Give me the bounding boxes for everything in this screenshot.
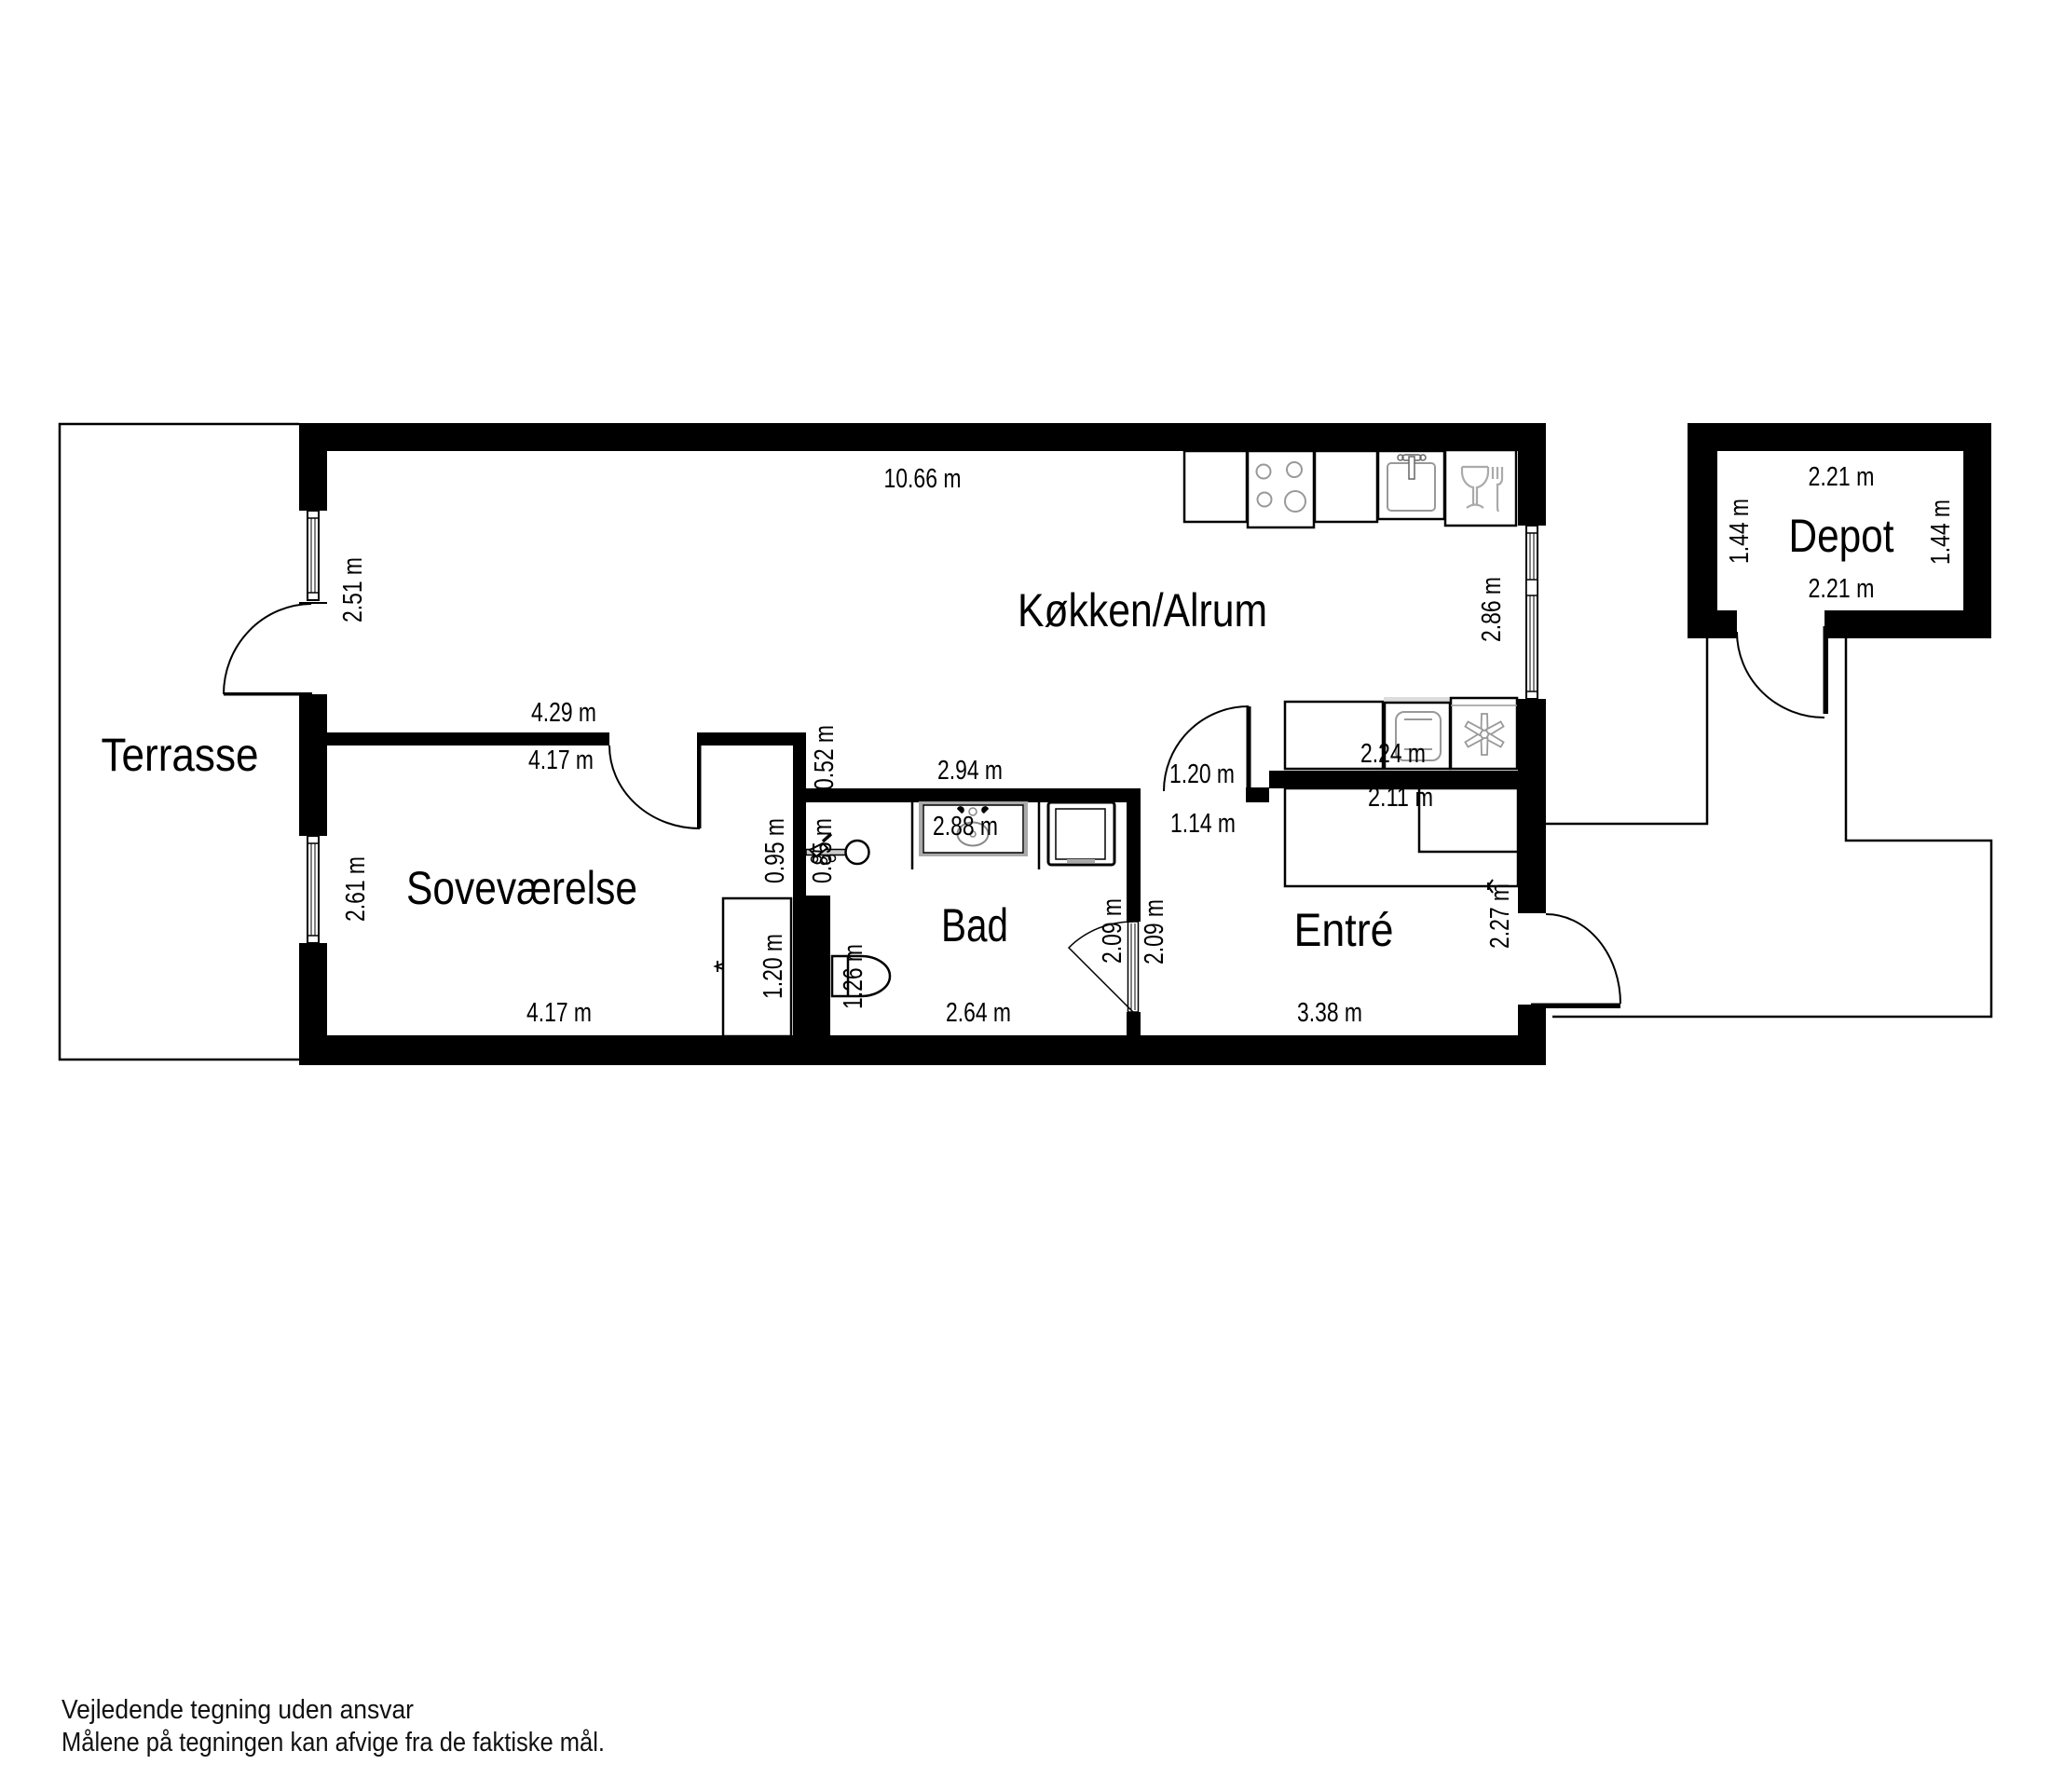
svg-text:3.38 m: 3.38 m [1297, 998, 1362, 1028]
svg-text:2.09 m: 2.09 m [1098, 898, 1127, 964]
svg-text:Entré: Entré [1294, 904, 1394, 956]
svg-text:1.44 m: 1.44 m [1725, 499, 1755, 564]
svg-text:2.64 m: 2.64 m [946, 998, 1011, 1028]
svg-text:0.95 m: 0.95 m [760, 818, 790, 883]
svg-text:Vejledende tegning uden ansvar: Vejledende tegning uden ansvar [61, 1695, 414, 1725]
svg-text:Terrasse: Terrasse [102, 729, 259, 781]
svg-text:4.17 m: 4.17 m [528, 746, 594, 775]
svg-text:4.29 m: 4.29 m [531, 698, 596, 728]
svg-text:2.09 m: 2.09 m [1140, 899, 1169, 964]
svg-text:Målene på tegningen kan afvige: Målene på tegningen kan afvige fra de fa… [61, 1728, 605, 1758]
svg-text:1.44 m: 1.44 m [1926, 499, 1956, 565]
svg-text:4.17 m: 4.17 m [526, 998, 592, 1028]
svg-text:Bad: Bad [941, 899, 1008, 951]
svg-text:Depot: Depot [1789, 510, 1894, 562]
svg-text:2.94 m: 2.94 m [937, 756, 1003, 786]
svg-text:10.66 m: 10.66 m [884, 464, 962, 494]
svg-text:1.20 m: 1.20 m [1169, 759, 1235, 789]
svg-text:1.14 m: 1.14 m [1170, 809, 1236, 839]
svg-text:Soveværelse: Soveværelse [406, 862, 637, 914]
svg-text:Køkken/Alrum: Køkken/Alrum [1018, 584, 1267, 636]
svg-text:1.20 m: 1.20 m [758, 934, 788, 999]
svg-text:2.24 m: 2.24 m [1360, 739, 1426, 769]
svg-text:2.21 m: 2.21 m [1809, 462, 1875, 492]
svg-text:2.88 m: 2.88 m [933, 812, 998, 841]
svg-text:2.11 m: 2.11 m [1368, 783, 1433, 813]
svg-text:2.86 m: 2.86 m [1477, 577, 1507, 642]
svg-text:0.52 m: 0.52 m [810, 725, 840, 790]
svg-text:2.51 m: 2.51 m [338, 557, 368, 622]
svg-text:0.85 m: 0.85 m [808, 818, 838, 883]
svg-text:2.21 m: 2.21 m [1809, 574, 1875, 604]
svg-text:1.26 m: 1.26 m [839, 944, 868, 1009]
svg-text:2.27 m: 2.27 m [1485, 883, 1515, 949]
svg-text:2.61 m: 2.61 m [341, 856, 371, 922]
